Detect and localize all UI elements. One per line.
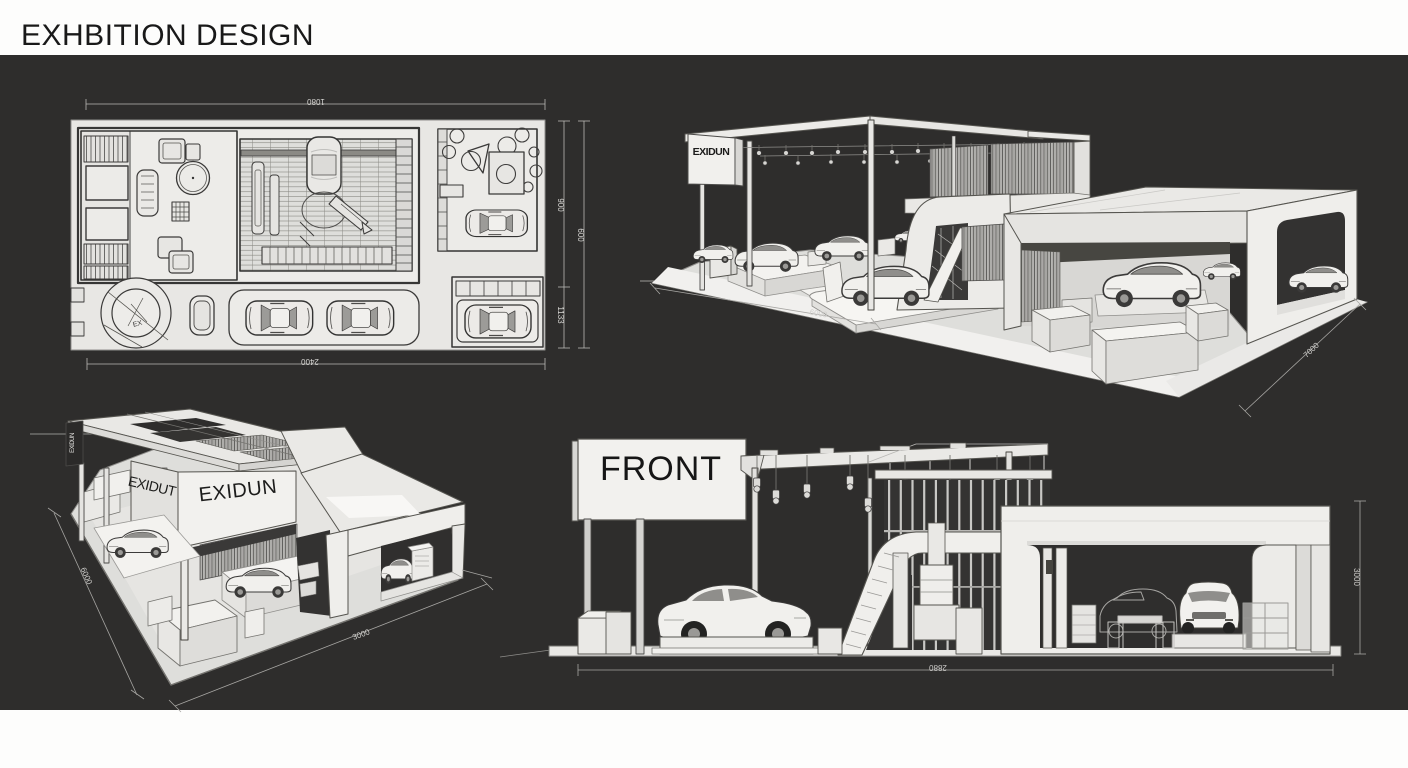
svg-text:2880: 2880 (929, 663, 947, 672)
svg-text:FRONT: FRONT (600, 450, 722, 488)
svg-text:1133: 1133 (556, 306, 565, 324)
svg-text:EXHBITION DESIGN: EXHBITION DESIGN (21, 19, 314, 52)
svg-text:EXIDUN: EXIDUN (693, 146, 730, 158)
svg-text:3000: 3000 (1352, 568, 1361, 586)
svg-text:900: 900 (556, 198, 565, 212)
svg-text:EXIDUN: EXIDUN (70, 433, 76, 453)
svg-text:2400: 2400 (301, 357, 319, 366)
svg-text:1080: 1080 (307, 97, 325, 106)
svg-text:600: 600 (576, 228, 585, 242)
